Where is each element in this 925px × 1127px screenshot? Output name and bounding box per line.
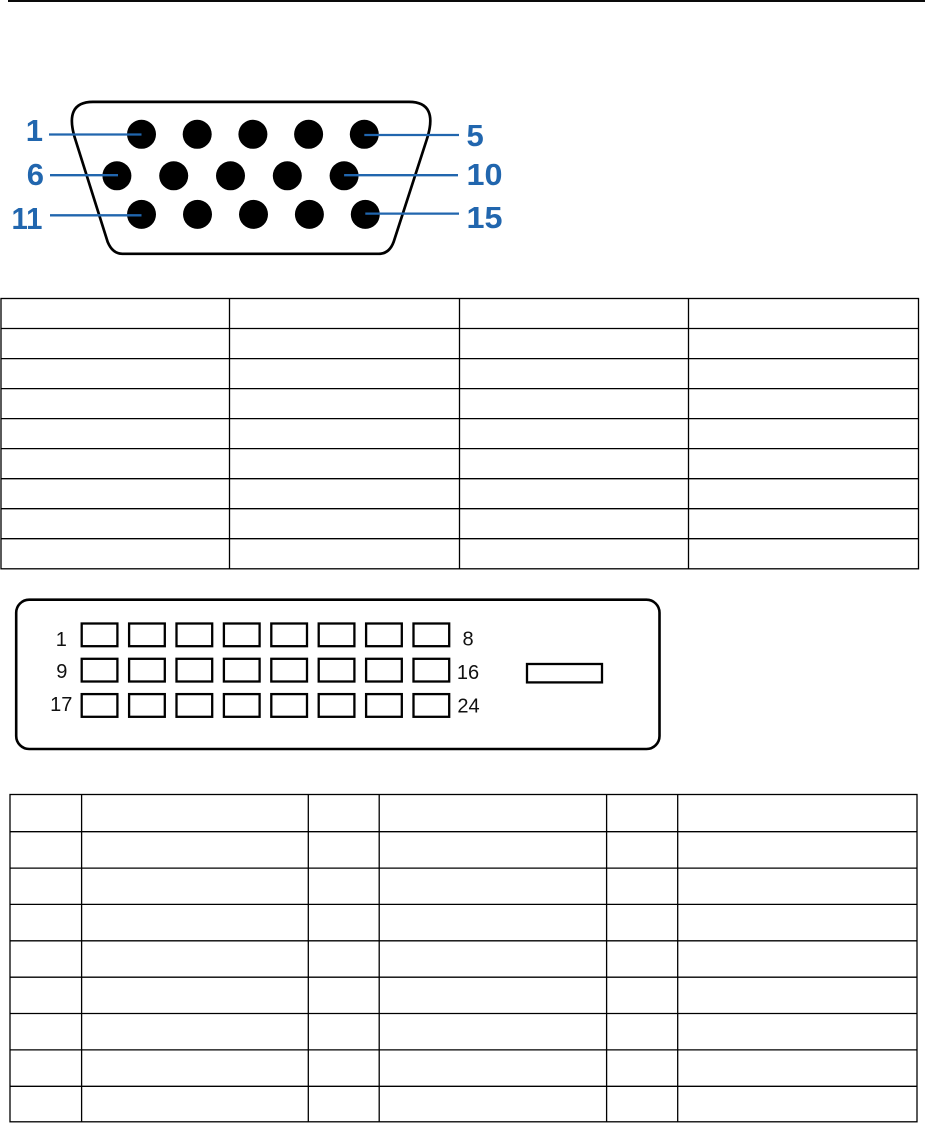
svg-text:1: 1 xyxy=(26,113,43,148)
svg-text:9: 9 xyxy=(56,661,67,683)
svg-text:8: 8 xyxy=(462,629,473,651)
svg-text:15: 15 xyxy=(467,200,503,235)
svg-text:5: 5 xyxy=(467,118,484,153)
svg-text:1: 1 xyxy=(56,629,67,651)
svg-text:17: 17 xyxy=(50,694,72,716)
svg-text:6: 6 xyxy=(27,157,44,192)
svg-text:10: 10 xyxy=(467,157,503,192)
svg-text:11: 11 xyxy=(12,201,43,236)
svg-text:24: 24 xyxy=(457,696,479,718)
svg-text:16: 16 xyxy=(457,662,479,684)
